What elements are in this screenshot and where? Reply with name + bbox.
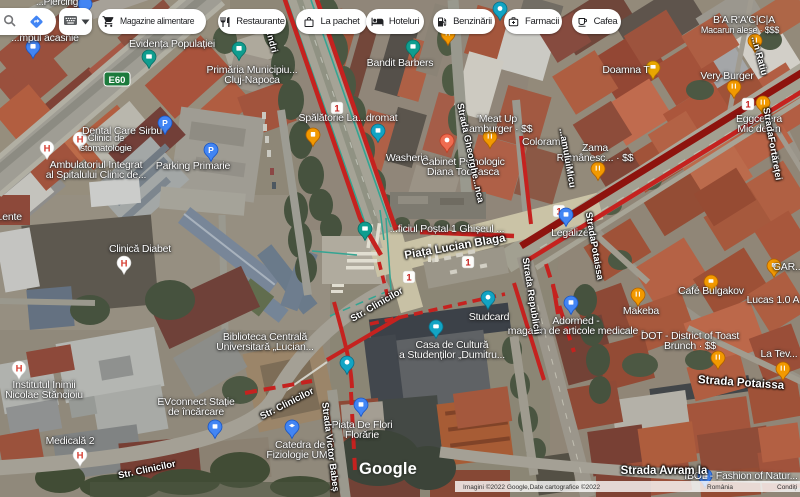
svg-text:H: H [16,363,23,374]
svg-text:1: 1 [406,273,412,284]
svg-text:E60: E60 [109,75,126,86]
svg-text:H: H [121,258,128,269]
svg-text:1: 1 [745,100,751,111]
svg-text:1: 1 [465,258,471,269]
svg-text:P: P [162,118,168,128]
svg-text:P: P [208,145,214,155]
svg-text:H: H [44,143,51,154]
svg-text:H: H [77,450,84,461]
